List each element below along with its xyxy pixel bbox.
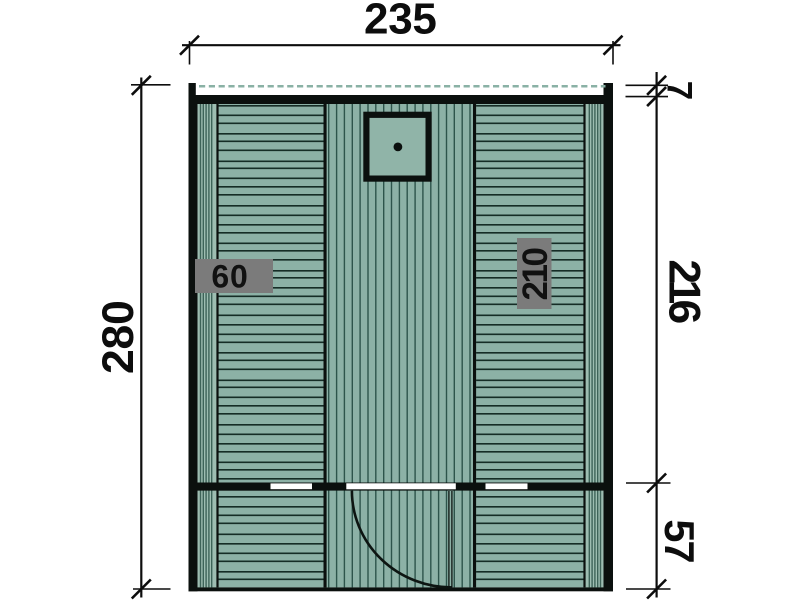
svg-text:216: 216: [659, 259, 708, 323]
svg-text:280: 280: [94, 300, 143, 374]
svg-text:210: 210: [516, 248, 555, 301]
svg-text:57: 57: [656, 519, 703, 562]
svg-text:60: 60: [211, 259, 248, 295]
svg-text:235: 235: [364, 0, 437, 43]
